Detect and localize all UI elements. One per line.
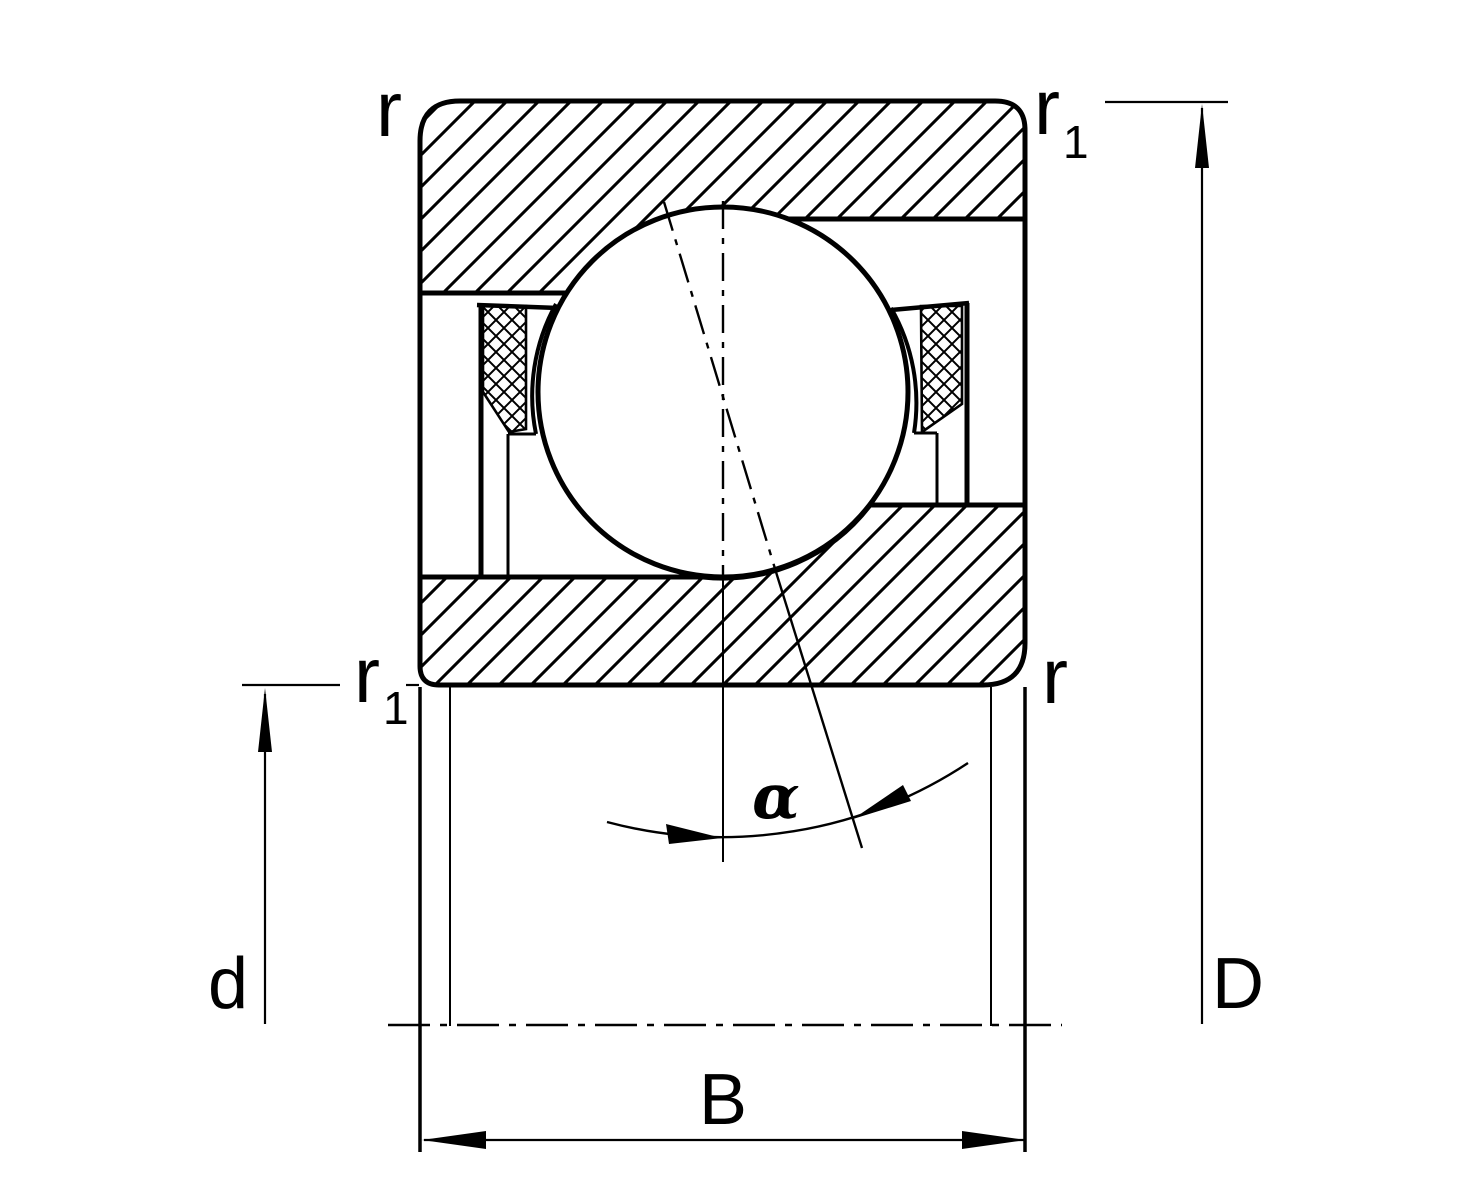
r-label-mid-right: r <box>1042 632 1068 720</box>
r1-label-top-right-sub: 1 <box>1063 116 1089 168</box>
bearing-dimension-drawing: d D B α r r 1 r 1 r <box>0 0 1466 1200</box>
alpha-arrowhead-right <box>853 785 911 819</box>
D-label: D <box>1212 944 1264 1024</box>
bearing-cross-section-svg: d D B α r r 1 r 1 r <box>0 0 1466 1200</box>
r1-label-top-right-base: r <box>1034 63 1060 151</box>
dimension-D: D <box>1105 102 1264 1024</box>
d-arrowhead <box>258 688 272 752</box>
B-label: B <box>699 1060 747 1140</box>
dimension-B: B <box>422 1060 1026 1149</box>
r-label-top-left: r <box>376 65 402 153</box>
B-arrowhead-right <box>962 1131 1026 1149</box>
r1-label-mid-left-base: r <box>354 631 380 719</box>
B-arrowhead-left <box>422 1131 486 1149</box>
dimension-d: d <box>208 685 340 1024</box>
alpha-arrowhead-left <box>666 824 722 844</box>
D-arrowhead <box>1195 104 1209 168</box>
d-label: d <box>208 944 248 1024</box>
alpha-label: α <box>752 760 800 833</box>
r1-label-mid-left-sub: 1 <box>383 682 409 734</box>
contact-angle-dimension: α <box>607 760 968 844</box>
cage-right-crosshatch <box>921 306 962 432</box>
cage-left-crosshatch <box>483 306 526 432</box>
cage-left-top-edge <box>477 305 558 308</box>
